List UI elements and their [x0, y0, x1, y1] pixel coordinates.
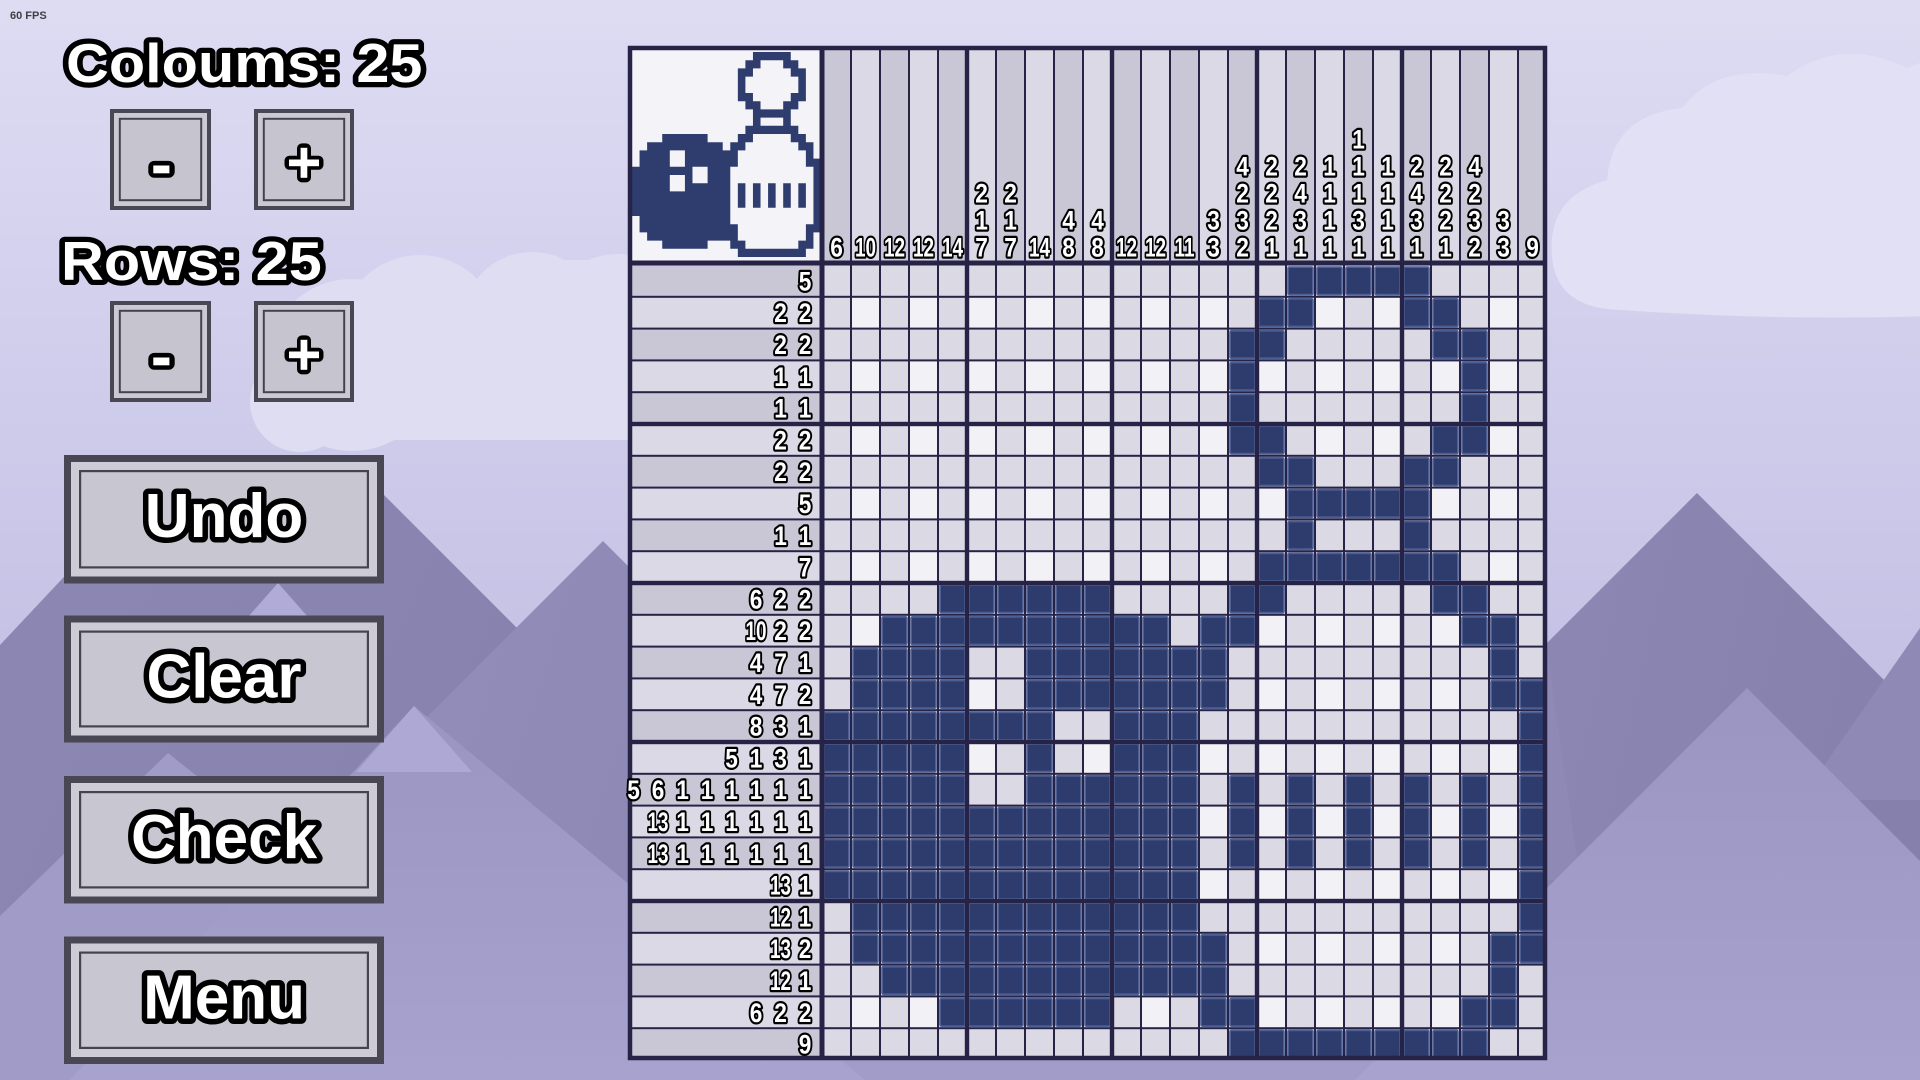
svg-text:7: 7 — [799, 553, 812, 583]
svg-text:60 FPS: 60 FPS — [10, 10, 47, 22]
svg-text:1: 1 — [725, 775, 738, 805]
svg-text:2: 2 — [799, 298, 812, 328]
svg-text:5: 5 — [725, 744, 738, 774]
svg-text:5: 5 — [627, 775, 640, 805]
svg-text:1: 1 — [1294, 233, 1307, 263]
svg-text:12: 12 — [884, 232, 905, 262]
svg-text:14: 14 — [1029, 232, 1050, 262]
svg-text:1: 1 — [774, 839, 787, 869]
svg-text:1: 1 — [1352, 179, 1365, 209]
svg-text:8: 8 — [750, 712, 763, 742]
svg-text:12: 12 — [1145, 232, 1166, 262]
svg-text:1: 1 — [1381, 206, 1394, 236]
svg-text:1: 1 — [725, 839, 738, 869]
svg-text:9: 9 — [799, 1030, 812, 1060]
svg-text:1: 1 — [799, 871, 812, 901]
svg-text:1: 1 — [799, 839, 812, 869]
svg-text:2: 2 — [1265, 152, 1278, 182]
svg-text:10: 10 — [745, 616, 766, 646]
svg-text:2: 2 — [1439, 179, 1452, 209]
svg-text:2: 2 — [799, 998, 812, 1028]
svg-text:Menu: Menu — [143, 964, 305, 1033]
svg-text:13: 13 — [647, 807, 668, 837]
svg-text:Rows: 25: Rows: 25 — [61, 231, 322, 292]
svg-text:1: 1 — [1265, 233, 1278, 263]
svg-text:1: 1 — [1323, 233, 1336, 263]
svg-text:2: 2 — [774, 585, 787, 615]
svg-text:2: 2 — [1468, 233, 1481, 263]
svg-text:2: 2 — [799, 457, 812, 487]
svg-text:1: 1 — [774, 775, 787, 805]
svg-text:12: 12 — [770, 902, 791, 932]
svg-text:2: 2 — [774, 298, 787, 328]
svg-text:2: 2 — [975, 179, 988, 209]
svg-text:2: 2 — [799, 616, 812, 646]
svg-text:1: 1 — [1352, 152, 1365, 182]
svg-text:1: 1 — [799, 362, 812, 392]
svg-text:2: 2 — [1468, 179, 1481, 209]
svg-text:4: 4 — [1468, 152, 1481, 182]
svg-text:2: 2 — [799, 330, 812, 360]
svg-text:6: 6 — [750, 998, 763, 1028]
svg-text:1: 1 — [1323, 206, 1336, 236]
svg-text:2: 2 — [774, 330, 787, 360]
svg-text:1: 1 — [1381, 179, 1394, 209]
svg-text:4: 4 — [1410, 179, 1423, 209]
svg-text:1: 1 — [799, 807, 812, 837]
svg-text:2: 2 — [774, 998, 787, 1028]
svg-text:1: 1 — [799, 394, 812, 424]
svg-text:3: 3 — [1207, 206, 1220, 236]
svg-text:2: 2 — [1265, 206, 1278, 236]
svg-text:1: 1 — [799, 903, 812, 933]
svg-text:2: 2 — [799, 426, 812, 456]
svg-text:2: 2 — [799, 585, 812, 615]
svg-text:6: 6 — [750, 585, 763, 615]
svg-text:1: 1 — [676, 807, 689, 837]
svg-text:3: 3 — [1236, 206, 1249, 236]
svg-text:1: 1 — [1323, 179, 1336, 209]
svg-text:1: 1 — [1323, 152, 1336, 182]
svg-text:2: 2 — [774, 426, 787, 456]
svg-text:2: 2 — [1236, 233, 1249, 263]
svg-text:1: 1 — [750, 775, 763, 805]
svg-text:7: 7 — [975, 233, 988, 263]
svg-text:5: 5 — [799, 267, 812, 297]
svg-text:1: 1 — [774, 807, 787, 837]
svg-text:4: 4 — [750, 680, 763, 710]
svg-text:1: 1 — [1381, 233, 1394, 263]
svg-text:9: 9 — [1526, 233, 1539, 263]
svg-text:3: 3 — [1410, 206, 1423, 236]
svg-text:12: 12 — [913, 232, 934, 262]
svg-text:1: 1 — [676, 839, 689, 869]
svg-text:2: 2 — [1410, 152, 1423, 182]
svg-text:11: 11 — [1175, 232, 1195, 262]
svg-text:12: 12 — [1116, 232, 1137, 262]
svg-text:3: 3 — [1468, 206, 1481, 236]
svg-text:7: 7 — [774, 680, 787, 710]
svg-text:2: 2 — [774, 616, 787, 646]
svg-text:Coloums: 25: Coloums: 25 — [66, 33, 422, 94]
svg-text:2: 2 — [1004, 179, 1017, 209]
svg-text:7: 7 — [774, 648, 787, 678]
svg-text:5: 5 — [799, 489, 812, 519]
svg-text:1: 1 — [725, 807, 738, 837]
svg-text:1: 1 — [799, 712, 812, 742]
svg-text:1: 1 — [1410, 233, 1423, 263]
svg-text:8: 8 — [1062, 233, 1075, 263]
svg-text:3: 3 — [774, 712, 787, 742]
svg-text:1: 1 — [701, 775, 714, 805]
svg-text:13: 13 — [770, 870, 791, 900]
svg-text:2: 2 — [1294, 152, 1307, 182]
svg-text:3: 3 — [1497, 206, 1510, 236]
svg-text:1: 1 — [701, 839, 714, 869]
svg-text:1: 1 — [1352, 233, 1365, 263]
svg-text:3: 3 — [1497, 233, 1510, 263]
svg-text:4: 4 — [1294, 179, 1307, 209]
svg-text:1: 1 — [1381, 152, 1394, 182]
svg-text:1: 1 — [774, 521, 787, 551]
svg-text:3: 3 — [1207, 233, 1220, 263]
svg-text:1: 1 — [1004, 206, 1017, 236]
svg-text:1: 1 — [799, 966, 812, 996]
svg-text:2: 2 — [1439, 206, 1452, 236]
svg-text:Check: Check — [131, 803, 318, 872]
svg-text:8: 8 — [1091, 233, 1104, 263]
svg-text:1: 1 — [701, 807, 714, 837]
svg-text:Clear: Clear — [146, 643, 301, 712]
svg-text:6: 6 — [830, 233, 843, 263]
svg-text:2: 2 — [1236, 179, 1249, 209]
svg-text:10: 10 — [855, 232, 876, 262]
svg-text:1: 1 — [750, 839, 763, 869]
svg-text:1: 1 — [799, 775, 812, 805]
svg-text:1: 1 — [774, 394, 787, 424]
svg-text:14: 14 — [942, 232, 963, 262]
svg-text:3: 3 — [774, 744, 787, 774]
svg-text:2: 2 — [1265, 179, 1278, 209]
svg-text:4: 4 — [1236, 152, 1249, 182]
svg-text:2: 2 — [799, 680, 812, 710]
svg-text:1: 1 — [750, 744, 763, 774]
svg-text:2: 2 — [799, 934, 812, 964]
svg-text:2: 2 — [774, 457, 787, 487]
svg-text:4: 4 — [1062, 206, 1075, 236]
svg-text:6: 6 — [652, 775, 665, 805]
svg-text:1: 1 — [799, 744, 812, 774]
svg-text:1: 1 — [774, 362, 787, 392]
svg-text:1: 1 — [1439, 233, 1452, 263]
svg-text:3: 3 — [1294, 206, 1307, 236]
svg-text:12: 12 — [770, 966, 791, 996]
svg-text:13: 13 — [647, 838, 668, 868]
svg-text:1: 1 — [750, 807, 763, 837]
svg-text:Undo: Undo — [145, 482, 303, 551]
svg-text:1: 1 — [676, 775, 689, 805]
svg-text:1: 1 — [1352, 125, 1365, 155]
svg-text:3: 3 — [1352, 206, 1365, 236]
svg-text:2: 2 — [1439, 152, 1452, 182]
svg-text:1: 1 — [799, 648, 812, 678]
svg-text:4: 4 — [750, 648, 763, 678]
svg-text:13: 13 — [770, 934, 791, 964]
svg-text:4: 4 — [1091, 206, 1104, 236]
svg-text:7: 7 — [1004, 233, 1017, 263]
svg-text:1: 1 — [799, 521, 812, 551]
svg-text:1: 1 — [975, 206, 988, 236]
